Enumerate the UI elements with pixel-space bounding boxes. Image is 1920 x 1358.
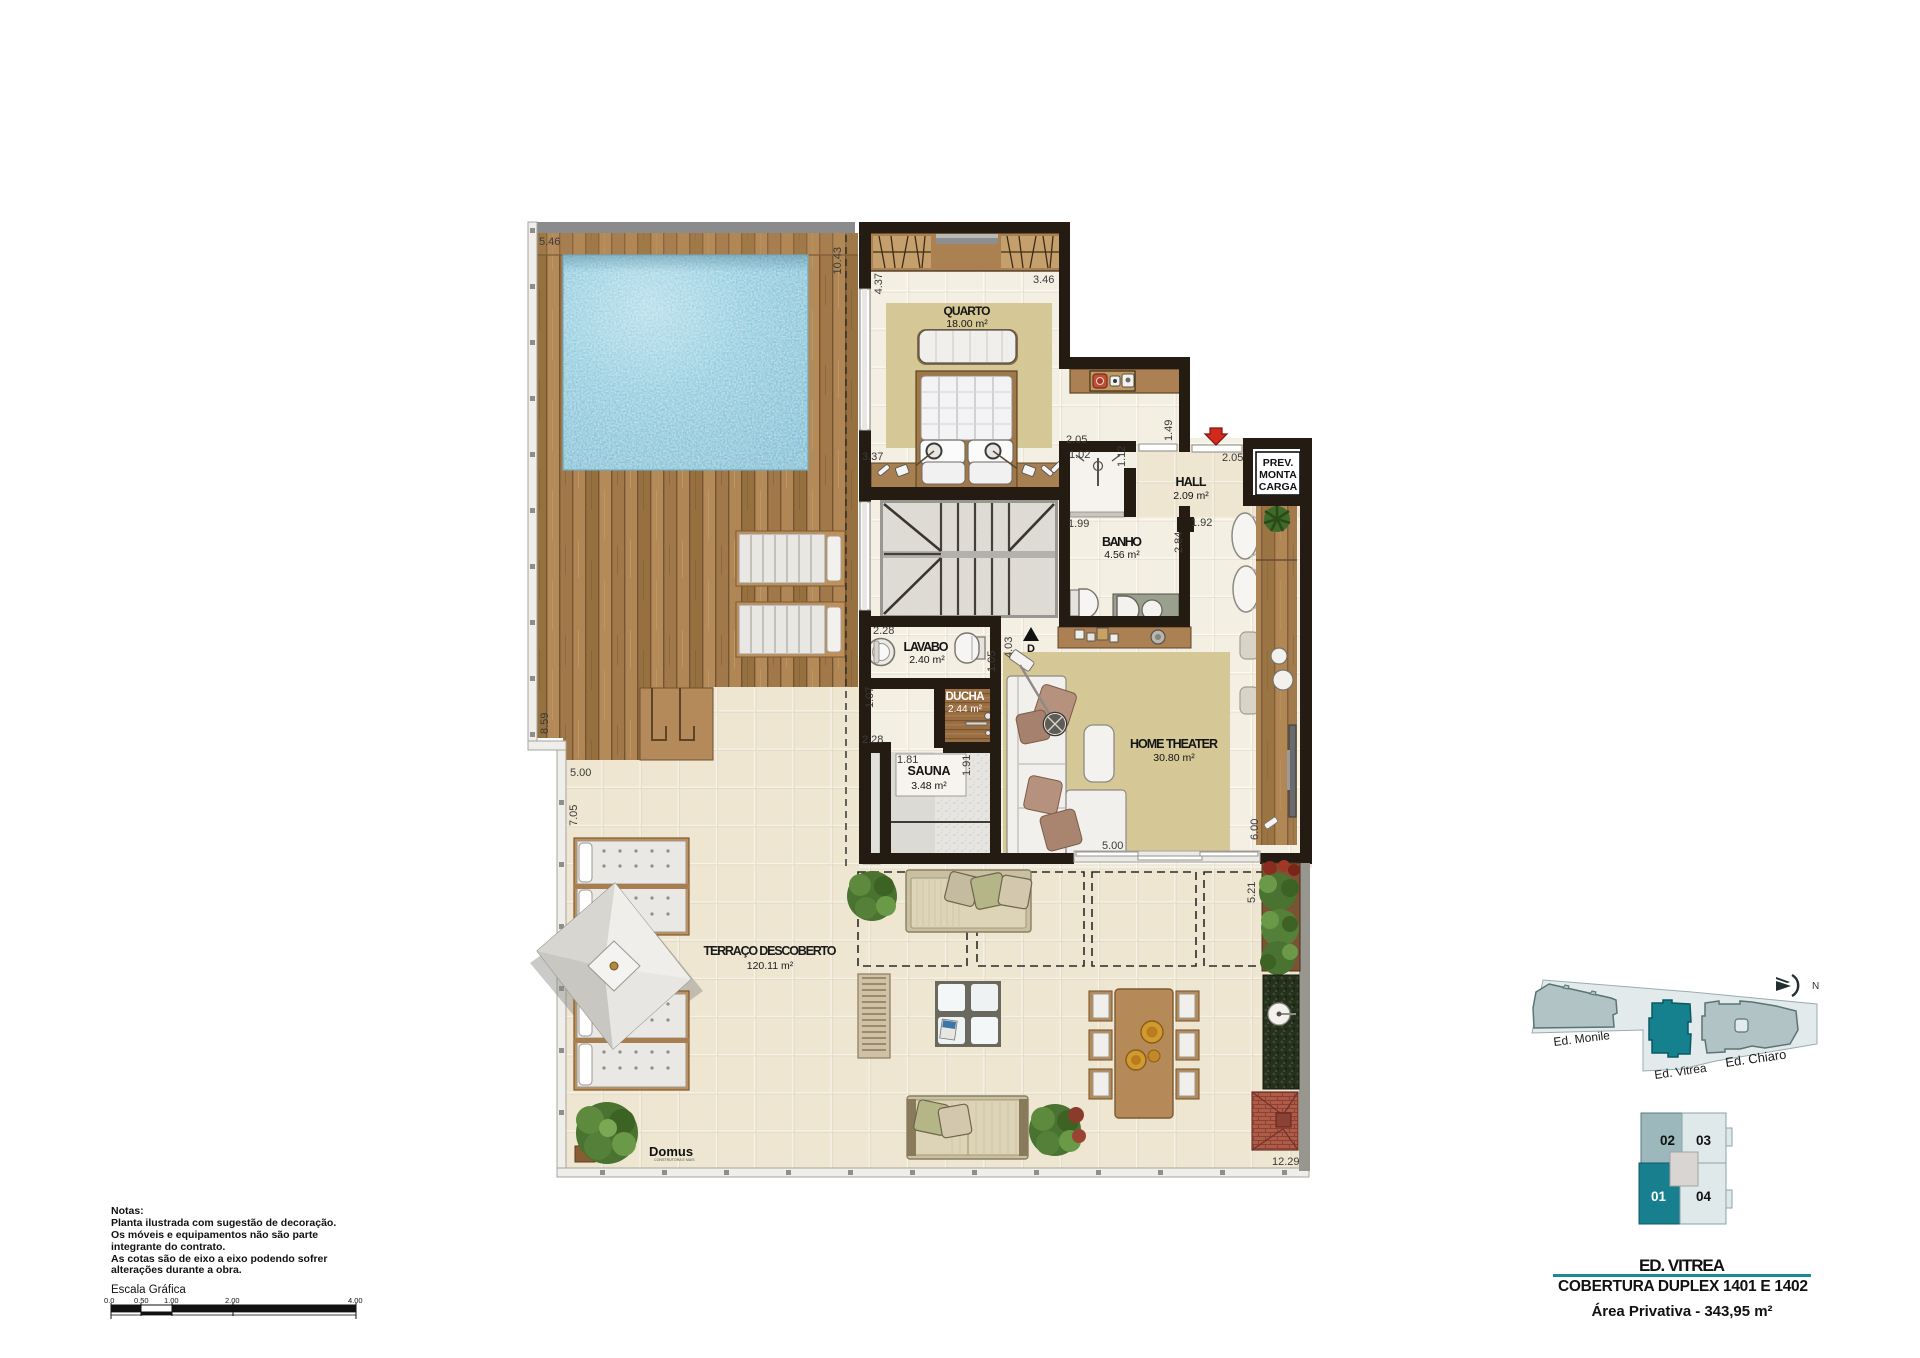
svg-text:Escala Gráfica: Escala Gráfica (111, 1284, 186, 1296)
svg-text:2.84: 2.84 (1173, 532, 1185, 553)
svg-text:integrante do contrato.: integrante do contrato. (111, 1241, 225, 1253)
svg-text:4.37: 4.37 (873, 273, 885, 294)
svg-text:18.00 m²: 18.00 m² (946, 318, 988, 330)
svg-text:SAUNA: SAUNA (908, 764, 951, 778)
svg-text:1.07: 1.07 (864, 687, 876, 708)
svg-text:2.28: 2.28 (862, 734, 883, 746)
svg-text:3.48 m²: 3.48 m² (911, 780, 947, 792)
svg-text:TERRAÇO DESCOBERTO: TERRAÇO DESCOBERTO (704, 944, 837, 958)
svg-text:Área Privativa - 343,95 m²: Área Privativa - 343,95 m² (1592, 1303, 1773, 1320)
svg-text:1.92: 1.92 (1191, 517, 1212, 529)
svg-text:Planta ilustrada com sugestão: Planta ilustrada com sugestão de decoraç… (111, 1217, 336, 1229)
svg-text:04: 04 (1696, 1189, 1712, 1204)
svg-text:4.56 m²: 4.56 m² (1104, 549, 1140, 561)
svg-text:COBERTURA DUPLEX 1401 E 1402: COBERTURA DUPLEX 1401 E 1402 (1558, 1278, 1808, 1295)
svg-text:CONSTRUTORA E MAIS: CONSTRUTORA E MAIS (654, 1158, 695, 1162)
svg-text:120.11 m²: 120.11 m² (747, 960, 794, 972)
svg-text:Domus: Domus (649, 1144, 693, 1159)
svg-text:1.99: 1.99 (1068, 518, 1089, 530)
svg-text:ED. VITREA: ED. VITREA (1639, 1256, 1725, 1275)
svg-text:Notas:: Notas: (111, 1205, 144, 1217)
svg-text:3.37: 3.37 (862, 451, 883, 463)
svg-text:7.05: 7.05 (568, 805, 580, 826)
svg-text:1.91: 1.91 (961, 755, 973, 776)
svg-text:5.46: 5.46 (539, 236, 560, 248)
svg-text:D: D (1027, 643, 1035, 655)
svg-text:30.80 m²: 30.80 m² (1153, 752, 1195, 764)
svg-text:alterações durante a obra.: alterações durante a obra. (111, 1264, 242, 1276)
svg-text:2.05: 2.05 (1222, 452, 1243, 464)
svg-text:2.05: 2.05 (1066, 434, 1087, 446)
svg-text:1.49: 1.49 (1163, 420, 1175, 441)
svg-text:PREV.: PREV. (1263, 457, 1294, 469)
svg-text:2.44 m²: 2.44 m² (948, 704, 983, 715)
svg-text:1.05: 1.05 (986, 651, 998, 672)
svg-text:5.21: 5.21 (1246, 882, 1258, 903)
svg-text:0.0: 0.0 (104, 1296, 114, 1305)
svg-text:2.28: 2.28 (873, 625, 894, 637)
svg-text:QUARTO: QUARTO (944, 304, 991, 318)
svg-text:8.59: 8.59 (539, 713, 551, 734)
svg-text:03: 03 (1696, 1133, 1712, 1148)
svg-text:CARGA: CARGA (1259, 481, 1298, 493)
svg-text:MONTA: MONTA (1259, 469, 1297, 481)
svg-text:1.02: 1.02 (1069, 449, 1090, 461)
svg-text:6.00: 6.00 (1249, 819, 1261, 840)
svg-text:4.00: 4.00 (348, 1296, 363, 1305)
svg-text:1.12: 1.12 (1116, 446, 1128, 467)
svg-text:3.46: 3.46 (1033, 274, 1054, 286)
svg-text:HALL: HALL (1176, 475, 1207, 489)
svg-text:2.09 m²: 2.09 m² (1173, 490, 1209, 502)
svg-text:5.00: 5.00 (570, 767, 591, 779)
svg-text:DUCHA: DUCHA (946, 691, 985, 703)
svg-text:5.00: 5.00 (1102, 840, 1123, 852)
svg-text:Os móveis e equipamentos não s: Os móveis e equipamentos não são parte (111, 1229, 318, 1241)
svg-text:2.40 m²: 2.40 m² (909, 654, 945, 666)
svg-text:10.43: 10.43 (832, 247, 844, 275)
svg-text:01: 01 (1651, 1189, 1667, 1204)
svg-text:BANHO: BANHO (1102, 535, 1142, 549)
svg-text:HOME THEATER: HOME THEATER (1130, 737, 1218, 751)
svg-text:1.00: 1.00 (164, 1296, 179, 1305)
svg-text:12.29: 12.29 (1272, 1156, 1300, 1168)
svg-text:4.03: 4.03 (1003, 637, 1015, 658)
svg-text:2.00: 2.00 (225, 1296, 240, 1305)
svg-text:N: N (1812, 981, 1819, 992)
svg-text:02: 02 (1660, 1133, 1675, 1148)
svg-text:LAVABO: LAVABO (904, 640, 949, 654)
